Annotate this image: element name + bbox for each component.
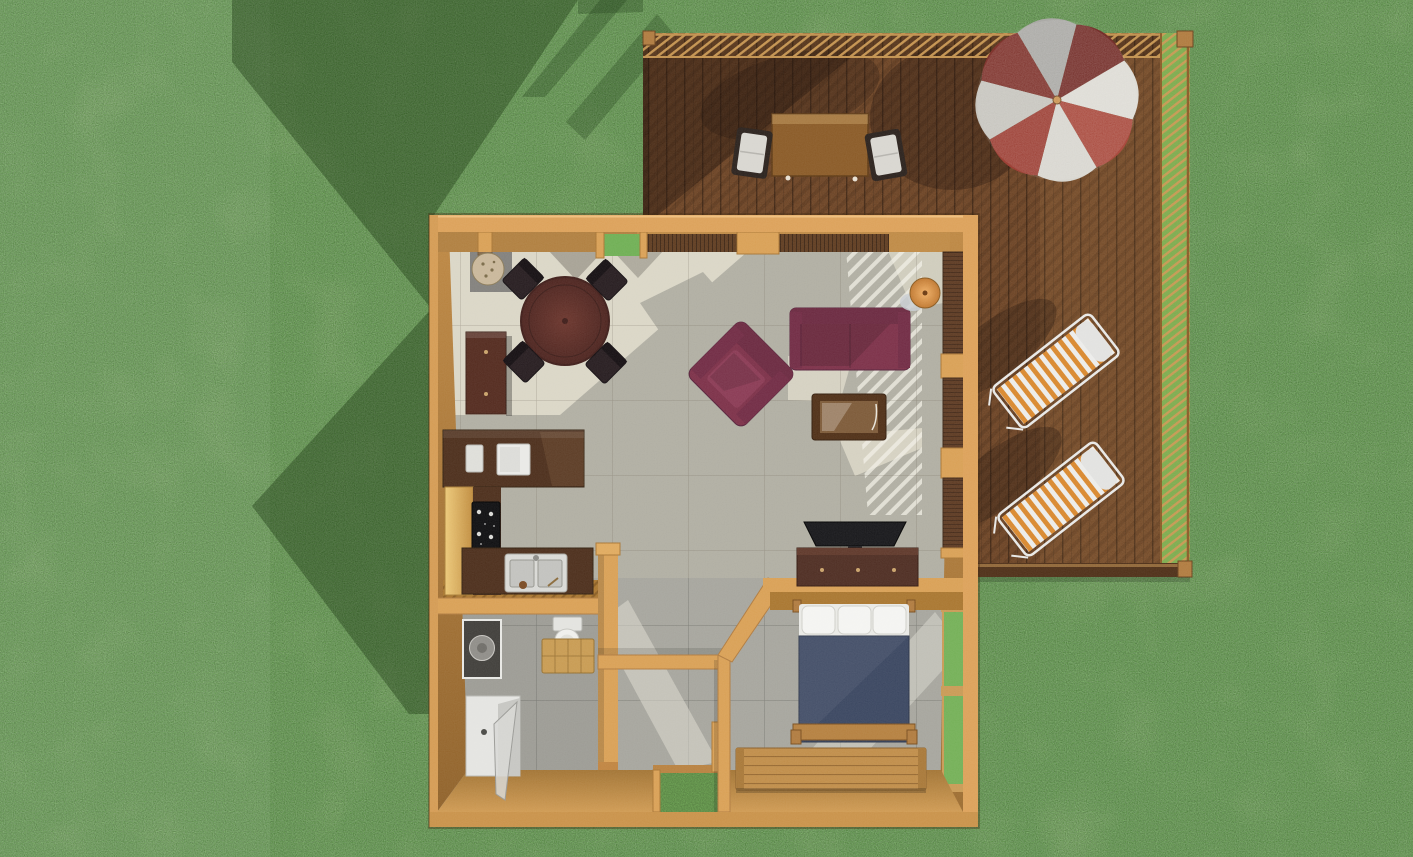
floorplan-render xyxy=(0,0,1413,857)
render-grain xyxy=(0,0,1413,857)
